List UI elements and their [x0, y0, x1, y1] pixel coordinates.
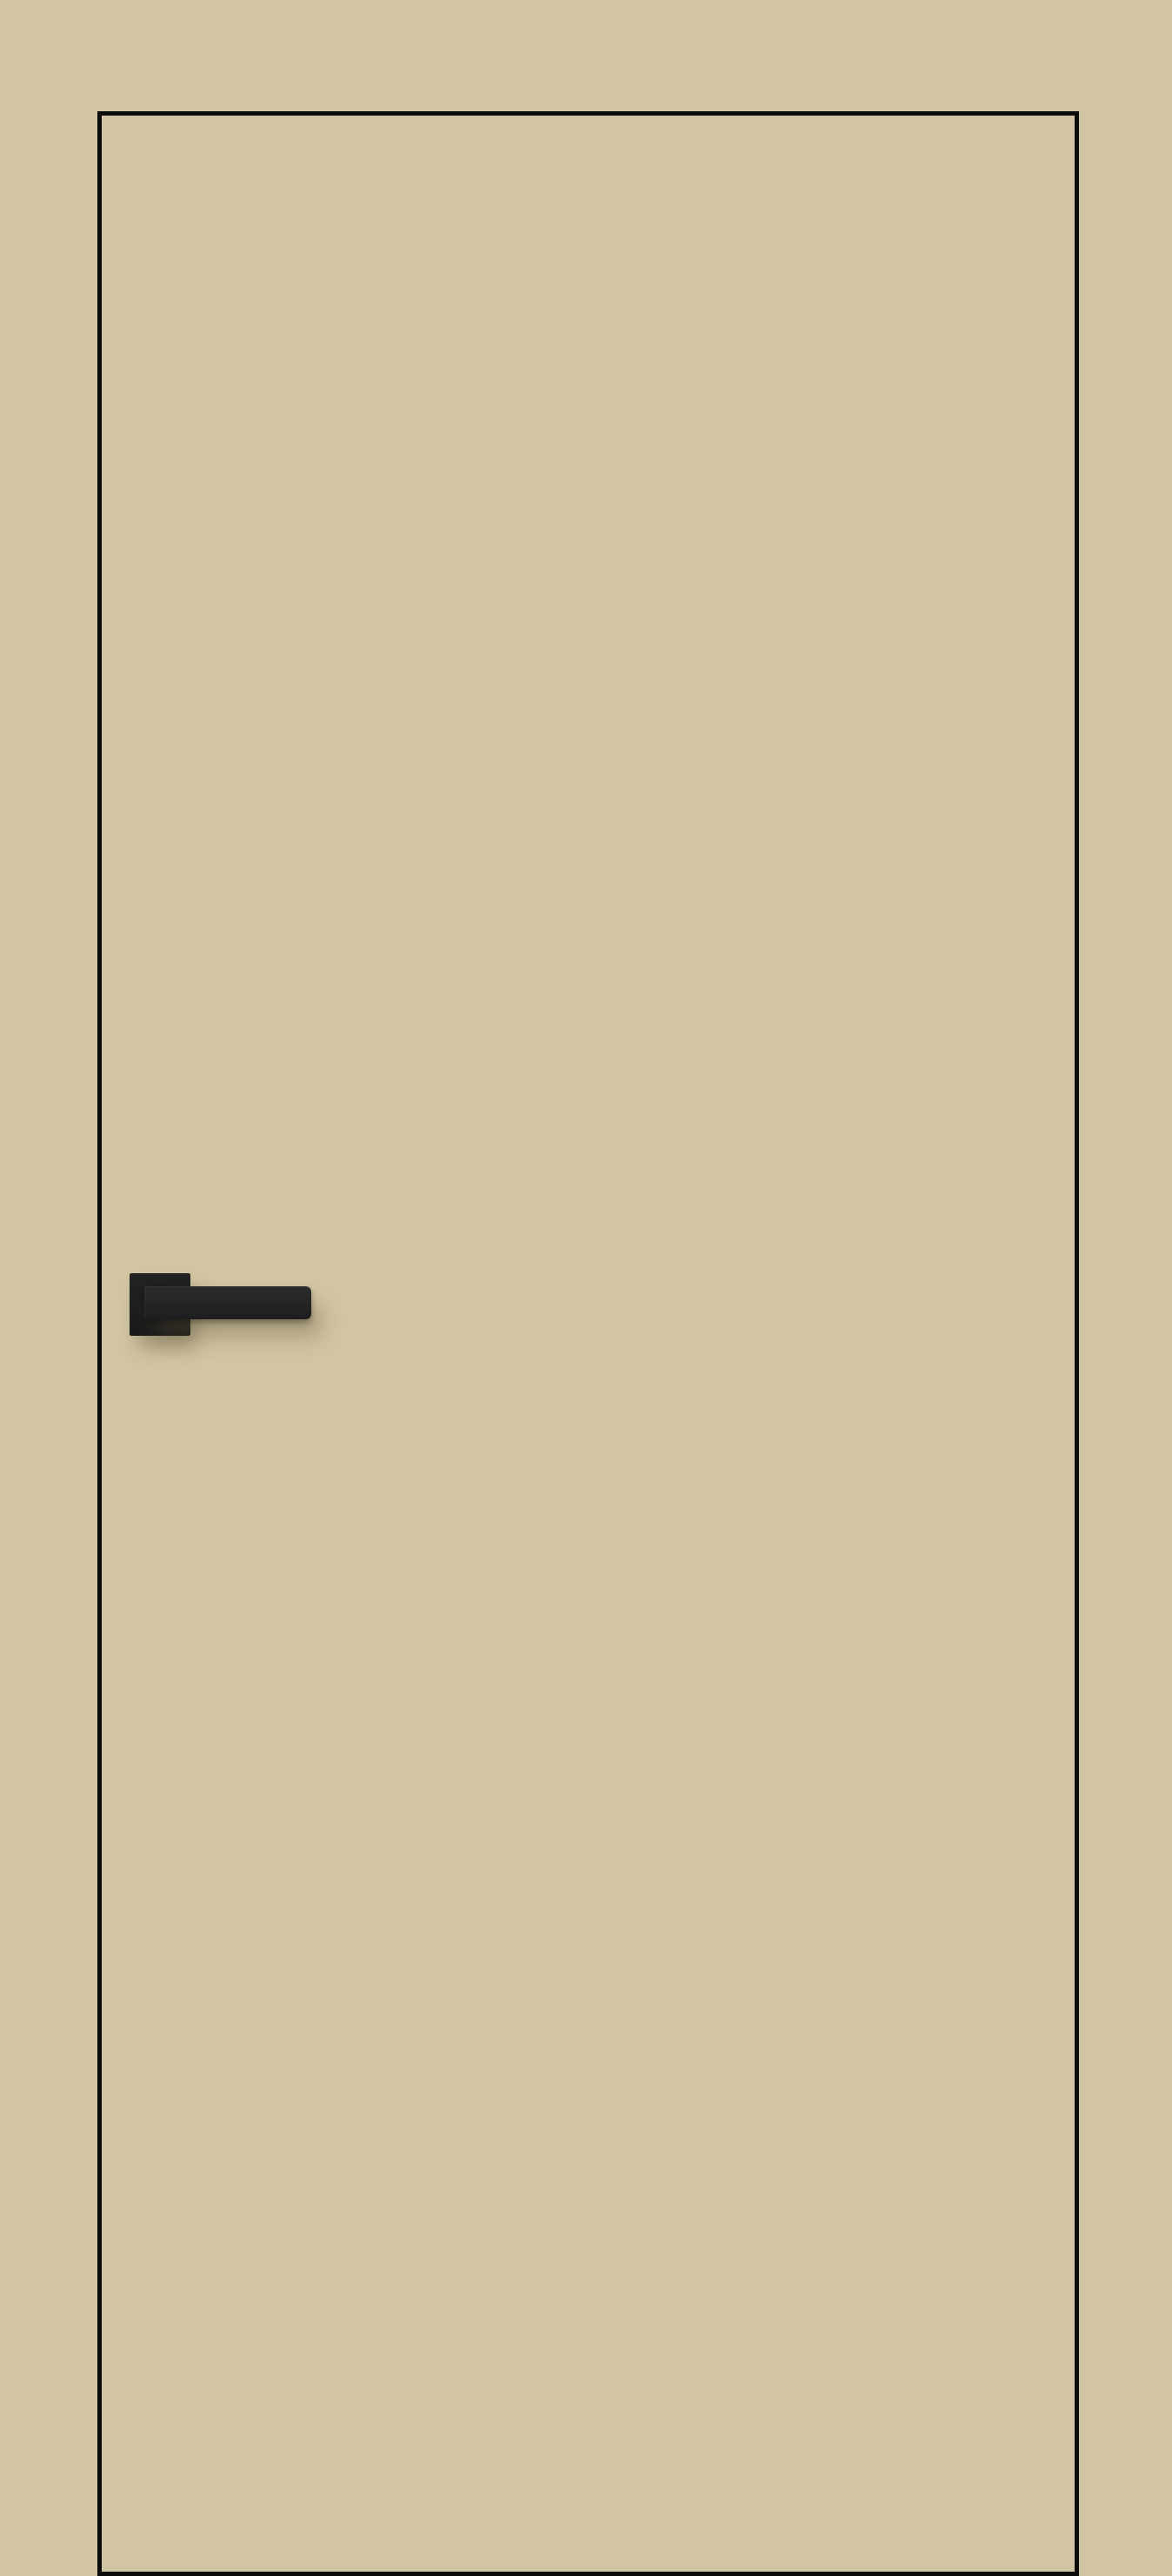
- door-product-photo: [0, 0, 1172, 2576]
- door-handle-lever: [144, 1286, 311, 1319]
- door-leaf: [97, 111, 1079, 2576]
